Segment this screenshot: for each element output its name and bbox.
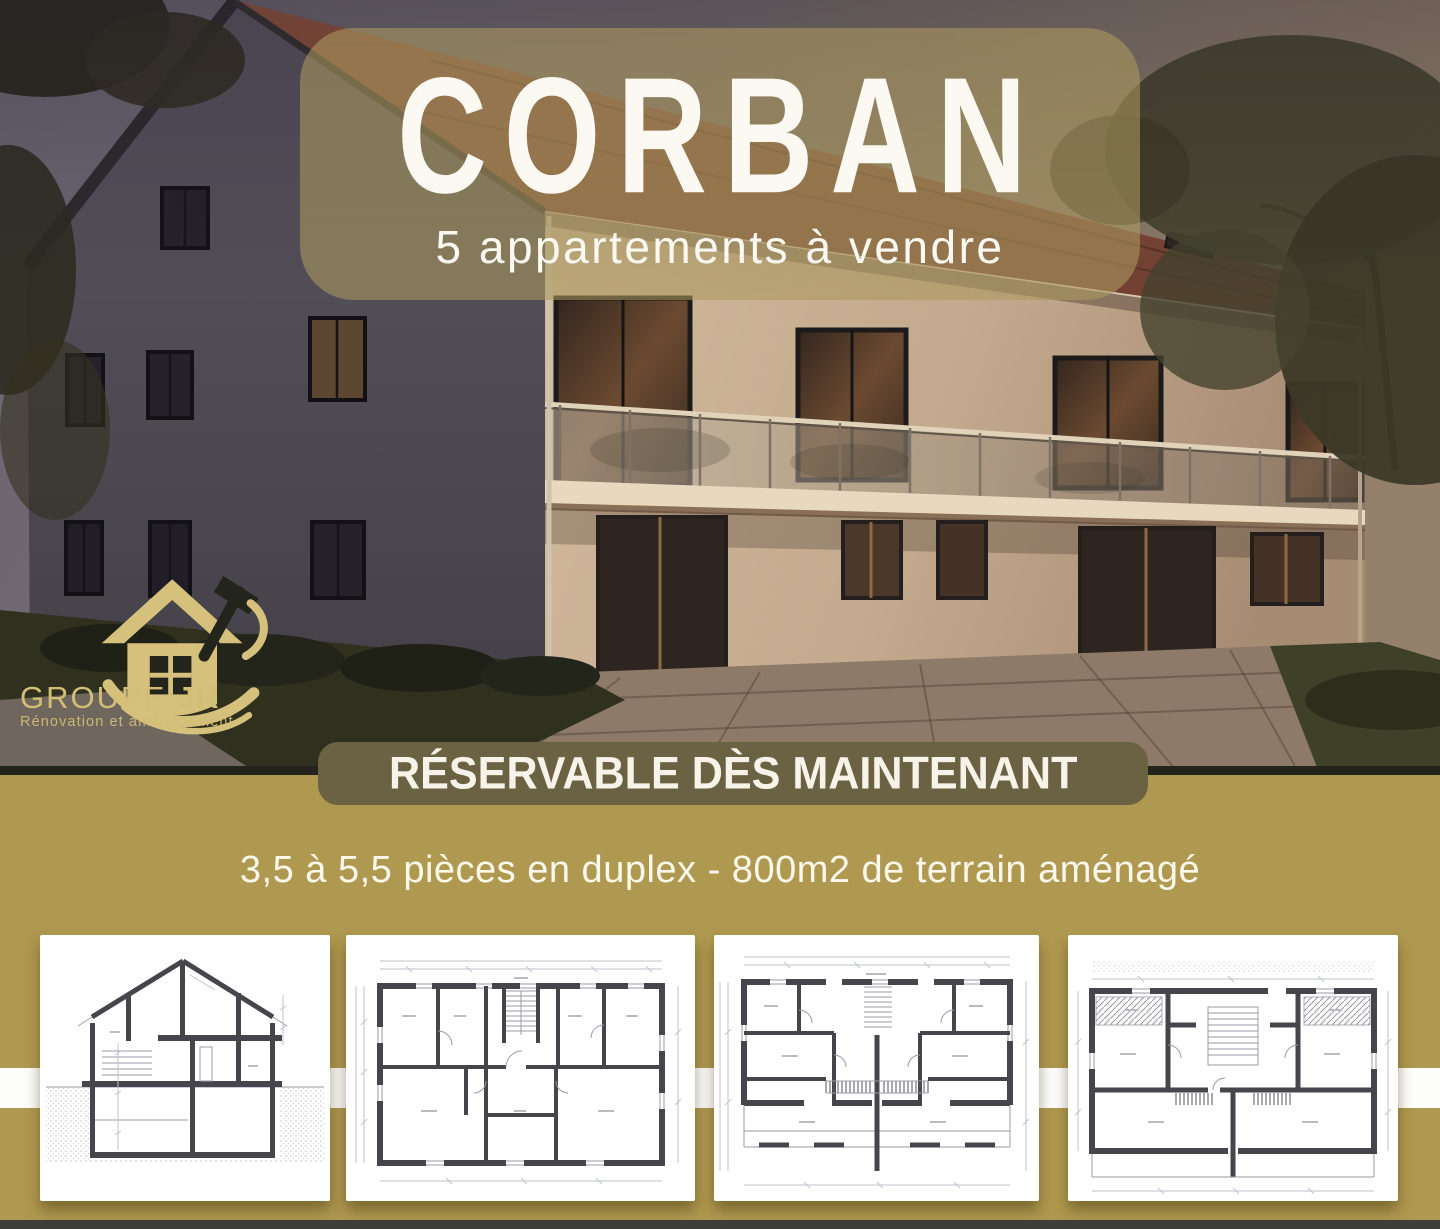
reservation-ribbon-label: RÉSERVABLE DÈS MAINTENANT [389,748,1077,800]
floor-plan-card-upper-floor [346,935,695,1201]
company-logo: GROUPE JR Rénovation et aménagement [0,552,270,752]
upper-floor-plan-drawing [346,935,695,1201]
page-subtitle: 5 appartements à vendre [436,220,1005,274]
logo-name: GROUPE JR [20,680,260,716]
title-banner: CORBAN 5 appartements à vendre [300,28,1140,300]
house-hammer-icon [50,560,320,760]
hero-photo: CORBAN 5 appartements à vendre GROUPE JR [0,0,1440,775]
floor-plan-card-cross-section [40,935,330,1201]
cross-section-drawing [40,935,330,1201]
floor-plan-card-ground-floor [714,935,1039,1201]
ground-floor-plan-drawing [714,935,1039,1201]
attic-floor-plan-drawing [1068,935,1398,1201]
page-title: CORBAN [397,53,1043,218]
reservation-ribbon: RÉSERVABLE DÈS MAINTENANT [318,742,1148,805]
flyer-page: CORBAN 5 appartements à vendre GROUPE JR [0,0,1440,1229]
details-section: 3,5 à 5,5 pièces en duplex - 800m2 de te… [0,775,1440,1229]
property-description: 3,5 à 5,5 pièces en duplex - 800m2 de te… [0,849,1440,892]
bottom-edge-strip [0,1220,1440,1229]
floor-plan-card-attic [1068,935,1398,1201]
logo-name-part2: JR [177,680,221,715]
logo-tagline: Rénovation et aménagement [20,714,260,730]
logo-name-part1: GROUPE [20,680,166,715]
